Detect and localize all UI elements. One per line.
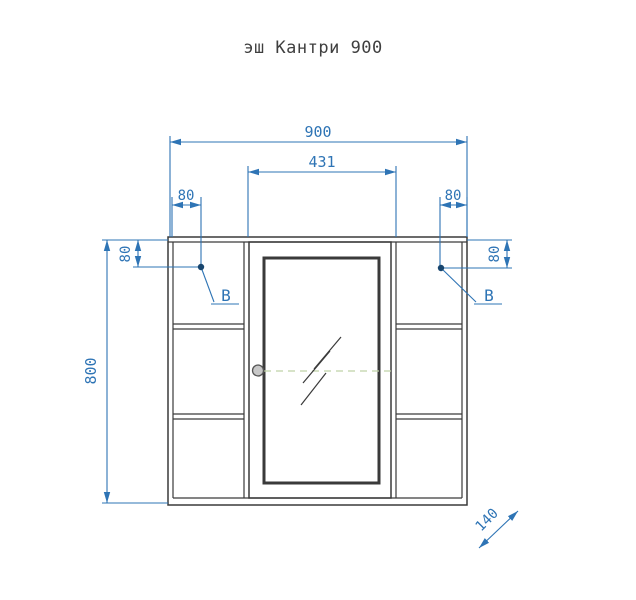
drawing-svg: 900 431 80 80 80	[0, 0, 636, 600]
hook-right-label: B	[484, 286, 494, 305]
dim-80tr-value: 80	[445, 188, 462, 204]
dim-80tl-value: 80	[178, 188, 195, 204]
mirror-stroke-2	[303, 351, 330, 383]
dimension-depth: 140	[473, 506, 518, 548]
dim-80lv-value: 80	[118, 246, 134, 263]
dimension-total-width: 900	[170, 123, 467, 237]
cabinet-door	[249, 242, 392, 498]
dim-80rv-value: 80	[487, 246, 503, 263]
hook-left-point-dot	[198, 264, 204, 270]
dimension-door-width: 431	[248, 153, 396, 237]
dimension-hook-left-horizontal: 80	[172, 188, 201, 267]
hook-left-label: B	[221, 286, 231, 305]
dim-800-value: 800	[82, 357, 100, 384]
right-shelves	[396, 324, 462, 419]
dimension-hook-left-vertical: 80	[118, 240, 201, 267]
door-knob	[253, 365, 264, 376]
dimension-hook-right-horizontal: 80	[440, 188, 467, 268]
dim-900-value: 900	[304, 123, 331, 141]
mirror-stroke-3	[301, 373, 326, 405]
hook-callout-right: B	[438, 265, 502, 305]
hook-left-leader-line	[201, 267, 214, 302]
dimension-hook-right-vertical: 80	[441, 240, 512, 268]
door-outer-frame	[249, 242, 391, 498]
hook-right-leader-line	[441, 268, 476, 302]
technical-drawing-canvas: 900 431 80 80 80	[0, 0, 636, 600]
left-shelves	[173, 324, 244, 419]
hook-right-point-dot	[438, 265, 444, 271]
drawing-title: эш Кантри 900	[243, 38, 383, 58]
mirror-stroke-1	[314, 337, 341, 369]
dimension-total-height: 800	[82, 240, 168, 503]
hook-callout-left: B	[198, 264, 239, 305]
dim-431-value: 431	[308, 153, 335, 171]
